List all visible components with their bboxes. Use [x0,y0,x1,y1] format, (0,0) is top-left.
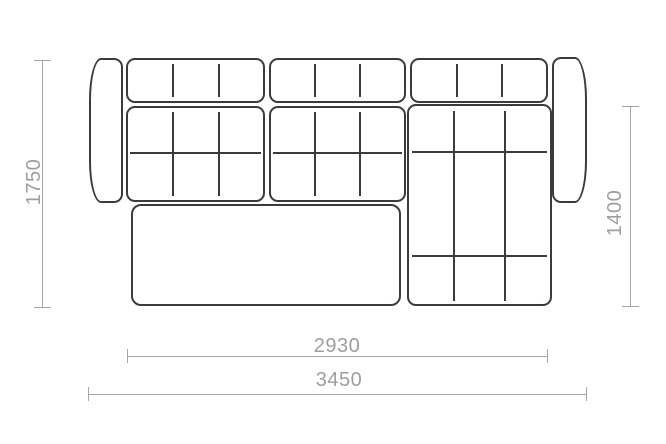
bench-seat [131,204,401,306]
seam-line [504,111,506,301]
chaise-section [407,104,552,306]
backrest-cushion-left [126,58,265,103]
right-armrest [552,57,587,203]
seam-line [172,64,174,97]
dimension-height-label: 1750 [24,159,44,206]
seat-cushion-left [126,106,265,202]
seam-line [273,152,402,154]
dimension-width-inner-label: 2930 [314,336,361,356]
dimension-end-tick [88,387,89,401]
seam-line [456,64,458,97]
seam-line [314,112,316,196]
seam-line [218,112,220,196]
dimension-end-tick [622,306,639,307]
seam-line [359,64,361,97]
dimension-end-tick [622,106,639,107]
dimension-line [88,394,587,395]
dimension-width-total-label: 3450 [316,370,363,390]
seam-line [359,112,361,196]
seam-line [501,64,503,97]
sofa-top-view-diagram: 1750 1400 2930 3450 [0,0,666,444]
dimension-end-tick [586,387,587,401]
seam-line [314,64,316,97]
seam-line [412,151,547,153]
dimension-end-tick [34,307,51,308]
dimension-chaise-depth-label: 1400 [605,190,625,237]
dimension-end-tick [34,60,51,61]
left-armrest [89,58,123,203]
backrest-cushion-center [269,58,406,103]
seam-line [218,64,220,97]
dimension-line [630,106,631,307]
seam-line [172,112,174,196]
seam-line [453,111,455,301]
seam-line [412,255,547,257]
seat-cushion-center [269,106,406,202]
dimension-end-tick [127,349,128,363]
backrest-cushion-right [410,58,548,103]
seam-line [130,152,261,154]
dimension-end-tick [547,349,548,363]
